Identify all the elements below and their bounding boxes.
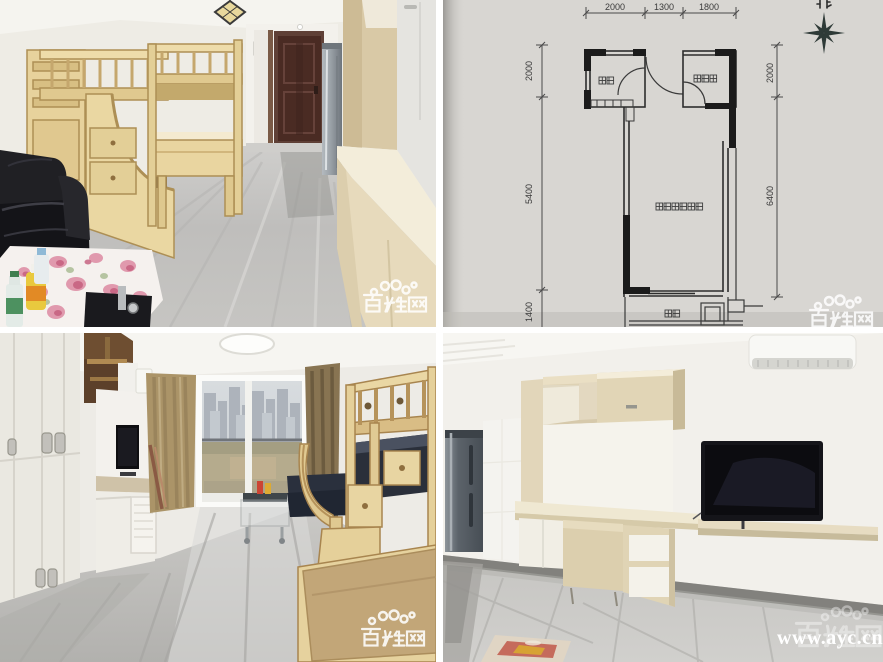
svg-text:1800: 1800 <box>699 2 719 12</box>
svg-text:1300: 1300 <box>654 2 674 12</box>
svg-text:6400: 6400 <box>765 186 775 206</box>
svg-text:5400: 5400 <box>524 184 534 204</box>
svg-text:www.ayc.cn: www.ayc.cn <box>777 627 883 649</box>
svg-text:2000: 2000 <box>765 63 775 83</box>
svg-text:1400: 1400 <box>524 302 534 322</box>
svg-text:2000: 2000 <box>605 2 625 12</box>
svg-text:2000: 2000 <box>524 61 534 81</box>
